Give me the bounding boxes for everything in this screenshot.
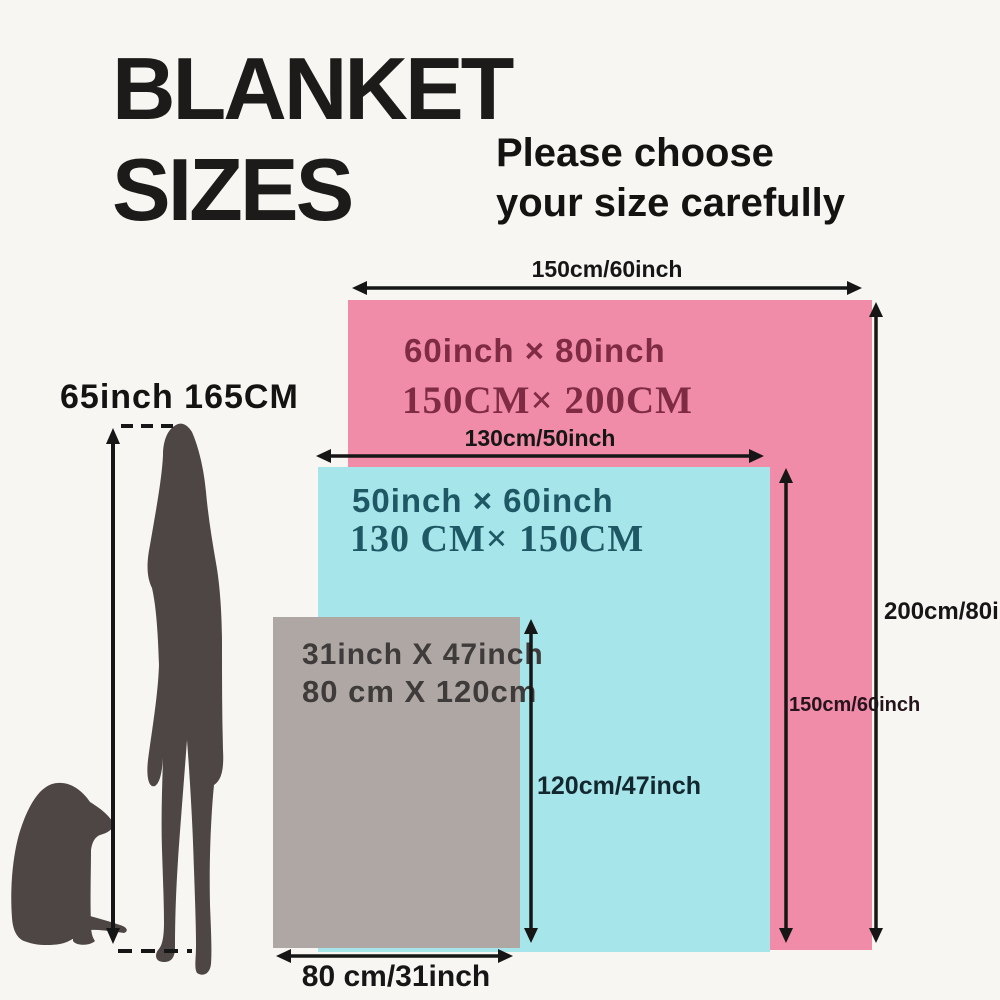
blanket-small-size-inch: 31inch X 47inch	[302, 638, 544, 672]
page-title: BLANKET SIZES	[112, 38, 511, 240]
woman-silhouette	[147, 424, 223, 975]
blanket-large-size-cm: 150CM× 200CM	[402, 378, 693, 423]
title-line-2: SIZES	[112, 139, 511, 240]
subtitle-line-1: Please choose	[496, 128, 845, 178]
blanket-large-size-inch: 60inch × 80inch	[404, 332, 666, 370]
blanket-medium-height-label: 150cm/60inch	[789, 694, 920, 717]
title-line-1: BLANKET	[112, 38, 511, 139]
blanket-medium-size-inch: 50inch × 60inch	[352, 482, 614, 520]
blanket-large-width-arrow	[352, 281, 862, 295]
subtitle: Please choose your size carefully	[496, 128, 845, 228]
blanket-medium-size-cm: 130 CM× 150CM	[350, 517, 644, 561]
blanket-large-width-label: 150cm/60inch	[352, 256, 862, 283]
blanket-large-height-label: 200cm/80inch	[884, 598, 1000, 626]
person-height-label: 65inch 165CM	[60, 378, 299, 417]
blanket-size-infographic: BLANKET SIZES Please choose your size ca…	[0, 0, 1000, 1000]
blanket-small-size-cm: 80 cm X 120cm	[302, 674, 537, 710]
blanket-small-width-label: 80 cm/31inch	[256, 960, 536, 994]
dog-silhouette	[11, 783, 127, 945]
person-height-arrow	[106, 426, 192, 951]
blanket-medium-width-label: 130cm/50inch	[316, 425, 764, 452]
blanket-small-height-label: 120cm/47inch	[537, 772, 701, 801]
subtitle-line-2: your size carefully	[496, 178, 845, 228]
